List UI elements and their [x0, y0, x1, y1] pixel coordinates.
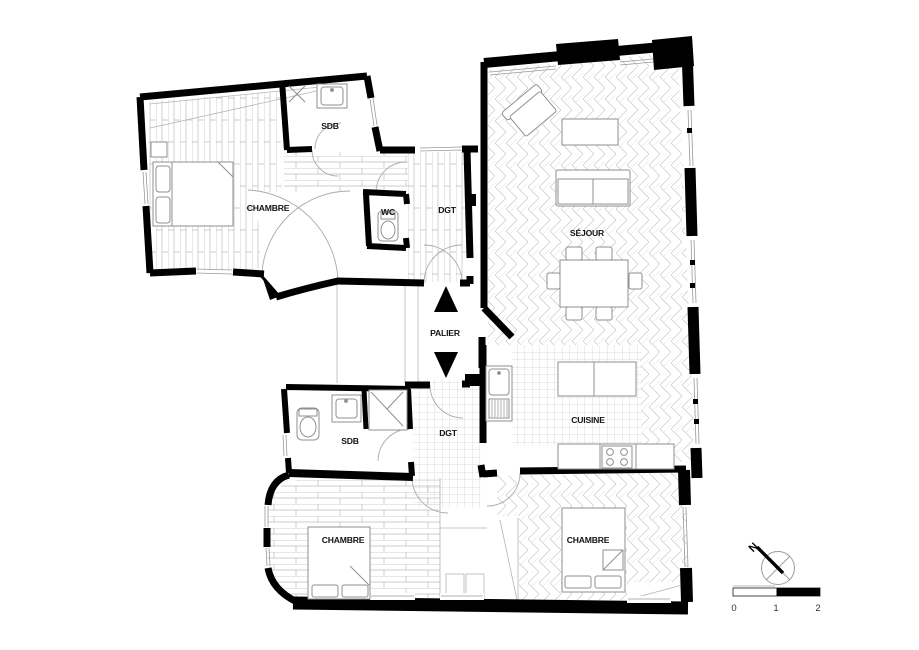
sdb-south-fixtures: [297, 390, 407, 440]
floor-dgt-north: [408, 152, 466, 282]
north-label: N: [747, 541, 761, 555]
stair-arrow-up: [434, 286, 458, 312]
sdb-north-fixtures: [289, 84, 347, 108]
room-label-sejour: SÉJOUR: [570, 228, 605, 238]
stair-arrow-down: [434, 352, 458, 378]
kitchen-counter-stove: [558, 444, 674, 469]
room-label-dgt-south: DGT: [439, 428, 457, 438]
room-label-chambre-se: CHAMBRE: [567, 535, 610, 545]
room-label-wc: WC: [381, 207, 395, 217]
room-label-chambre-nw: CHAMBRE: [247, 203, 290, 213]
scale-bar-black-half: [777, 588, 821, 596]
north-arrow: N: [747, 541, 795, 585]
floor-plan-page: CHAMBRE SDB WC DGT PALIER SÉJOUR CUISINE…: [0, 0, 919, 650]
coffee-table: [562, 119, 618, 145]
room-label-sdb-south: SDB: [341, 436, 359, 446]
scale-bar: 0 1 2: [731, 586, 820, 614]
room-label-cuisine: CUISINE: [571, 415, 605, 425]
room-label-dgt-north: DGT: [438, 205, 456, 215]
scale-label-0: 0: [731, 603, 736, 614]
kitchen-sink-unit: [486, 366, 512, 421]
bed-se: [562, 508, 625, 592]
kitchen-island: [558, 362, 636, 396]
room-label-sdb-north: SDB: [321, 121, 339, 131]
room-label-chambre-sw: CHAMBRE: [322, 535, 365, 545]
sofa: [556, 170, 630, 206]
scale-label-2: 2: [815, 603, 820, 614]
room-label-palier: PALIER: [430, 328, 461, 338]
scale-label-1: 1: [773, 603, 778, 614]
floor-corridor-north: [284, 152, 408, 192]
floor-plan-drawing: CHAMBRE SDB WC DGT PALIER SÉJOUR CUISINE…: [0, 0, 919, 650]
